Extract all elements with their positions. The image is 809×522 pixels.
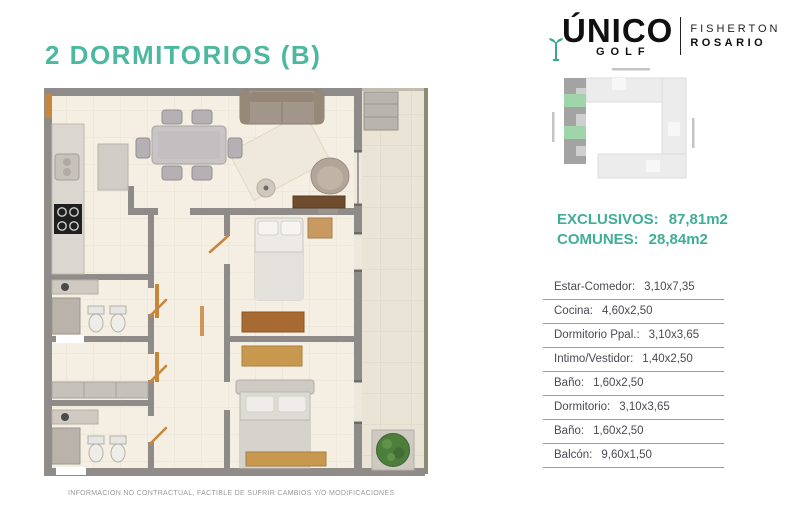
balcony-shelf [364, 92, 398, 130]
disclaimer-text: INFORMACION NO CONTRACTUAL, FACTIBLE DE … [68, 490, 394, 497]
room-label: Balcón: [554, 449, 592, 462]
brand-name: ÚNICO [562, 14, 673, 48]
room-dimension-table: Estar-Comedor: 3,10x7,35 Cocina: 4,60x2,… [543, 276, 724, 468]
master-dresser [242, 312, 304, 332]
room-label: Intimo/Vestidor: [554, 353, 633, 366]
page-title: 2 DORMITORIOS (B) [45, 40, 321, 71]
wardrobe [52, 382, 148, 398]
bath1-window [56, 335, 84, 343]
site-plan-map [550, 66, 740, 198]
common-area-label: COMUNES: [557, 230, 639, 250]
room-label: Estar-Comedor: [554, 281, 635, 294]
room-row-estar-comedor: Estar-Comedor: 3,10x7,35 [543, 276, 724, 300]
floor-plan-drawing [40, 84, 432, 480]
room-value: 1,60x2,50 [593, 377, 644, 390]
balcony-top-edge [358, 88, 425, 91]
room-label: Dormitorio: [554, 401, 610, 414]
floor-lamp [257, 179, 275, 197]
bath1-vanity [52, 280, 98, 294]
room-value: 1,60x2,50 [593, 425, 644, 438]
master-desk [308, 218, 332, 238]
room-row-bano-2: Baño: 1,60x2,50 [543, 420, 724, 444]
brand-location-line1: FISHERTON [690, 23, 780, 35]
room-row-dormitorio-ppal: Dormitorio Ppal.: 3,10x3,65 [543, 324, 724, 348]
kitchen-counter [52, 124, 84, 274]
common-area-value: 28,84m2 [649, 230, 708, 250]
room-value: 3,10x3,65 [619, 401, 670, 414]
brand-location: FISHERTON ROSARIO [690, 23, 780, 49]
room-row-bano-1: Baño: 1,60x2,50 [543, 372, 724, 396]
golf-tee-icon [548, 36, 564, 62]
kitchen-sink [55, 154, 79, 180]
brochure-sheet: 2 DORMITORIOS (B) [0, 0, 809, 522]
bath2-window [56, 467, 86, 475]
room-label: Cocina: [554, 305, 593, 318]
brand-logo: ÚNICO GOLF FISHERTON ROSARIO [548, 14, 781, 58]
building-footprint [586, 78, 686, 178]
armchair [311, 158, 349, 194]
balcony-railing [424, 88, 428, 474]
highlighted-unit-2 [564, 126, 586, 139]
room-label: Dormitorio Ppal.: [554, 329, 640, 342]
unit-wing [564, 78, 586, 164]
exclusive-area-value: 87,81m2 [669, 210, 728, 230]
room-label: Baño: [554, 425, 584, 438]
room-label: Baño: [554, 377, 584, 390]
brand-location-line2: ROSARIO [690, 37, 780, 49]
room-row-cocina: Cocina: 4,60x2,50 [543, 300, 724, 324]
room-value: 3,10x3,65 [649, 329, 700, 342]
balcony-floor [358, 90, 425, 472]
room-row-dormitorio: Dormitorio: 3,10x3,65 [543, 396, 724, 420]
room-value: 9,60x1,50 [601, 449, 652, 462]
bath1-toilet [88, 306, 104, 332]
sofa [240, 90, 324, 124]
vestidor [52, 382, 148, 398]
room-row-balcon: Balcón: 9,60x1,50 [543, 444, 724, 468]
logo-divider [680, 17, 681, 55]
exclusive-area-label: EXCLUSIVOS: [557, 210, 659, 230]
highlighted-unit-1 [564, 94, 586, 107]
bath2-vanity [52, 410, 98, 424]
balcony-plant [372, 430, 414, 470]
room-row-intimo-vestidor: Intimo/Vestidor: 1,40x2,50 [543, 348, 724, 372]
common-area: COMUNES: 28,84m2 [557, 230, 728, 250]
room-value: 1,40x2,50 [642, 353, 693, 366]
bedroom2-bench [246, 452, 326, 466]
room-value: 4,60x2,50 [602, 305, 653, 318]
bath1-shower [52, 298, 80, 334]
bath2-shower [52, 428, 80, 464]
master-bed [255, 218, 303, 300]
bath2-toilet [88, 436, 104, 462]
exclusive-area: EXCLUSIVOS: 87,81m2 [557, 210, 728, 230]
bath2-bidet [110, 436, 126, 462]
kitchen-cabinet [98, 144, 128, 190]
bedroom2-dresser [242, 346, 302, 366]
entry-door [45, 94, 52, 118]
brand-logo-left: ÚNICO GOLF [548, 14, 673, 58]
bath1-bidet [110, 306, 126, 332]
room-value: 3,10x7,35 [644, 281, 695, 294]
kitchen-stove [54, 204, 82, 234]
area-summary: EXCLUSIVOS: 87,81m2 COMUNES: 28,84m2 [557, 210, 728, 250]
